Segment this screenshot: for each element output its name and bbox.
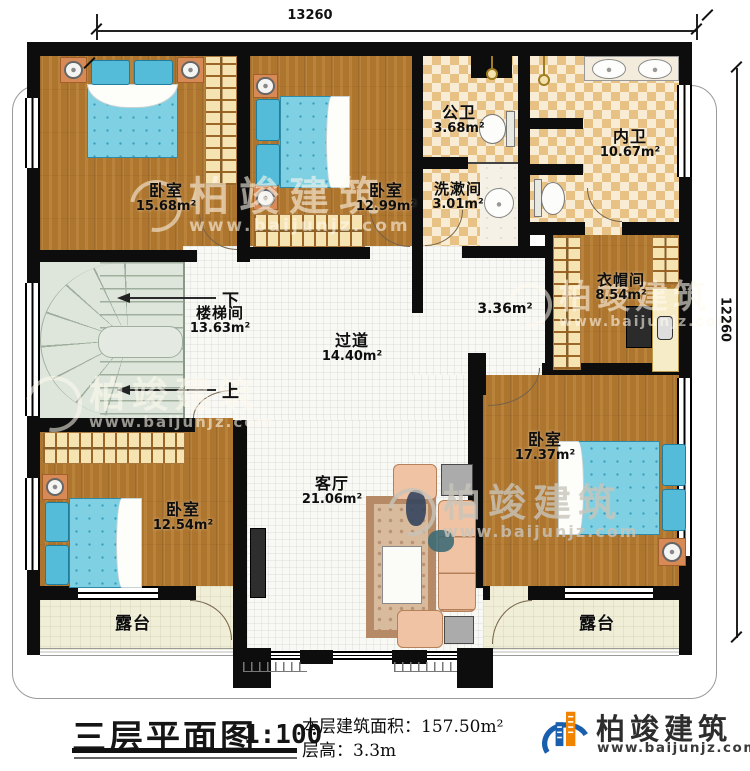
- wall-publicbath-washroom: [423, 157, 468, 169]
- wardrobe-bedroom2: [253, 214, 365, 247]
- pillow: [91, 60, 130, 85]
- wall-bedroom3-bottom-a: [27, 586, 78, 600]
- wall-bedroom4-bottom-c: [653, 586, 679, 600]
- wall-innerbath-bottom-a: [530, 222, 585, 235]
- wall-living-west: [233, 420, 247, 652]
- room-name: 楼梯间: [173, 305, 267, 322]
- toilet-inner-bath: [541, 182, 565, 215]
- pillow: [256, 99, 280, 141]
- label-hallway-nook: 3.36m²: [468, 302, 542, 318]
- wardrobe-cloakroom-left: [553, 237, 581, 370]
- line-publicbath-washroom: [468, 162, 518, 164]
- bed-fold-bedroom2: [326, 96, 350, 188]
- brand-logo: [540, 702, 592, 760]
- dim-tick: [701, 9, 713, 21]
- floor-height-label: 层高：: [302, 741, 353, 761]
- label-stairs-up: 上: [222, 377, 248, 402]
- room-area: 15.68m²: [116, 200, 216, 215]
- side-table-bottom: [444, 616, 474, 644]
- ceiling-light-public-bath: [486, 68, 498, 80]
- label-bedroom3: 卧室 12.54m²: [133, 501, 233, 533]
- nightstand-bedroom1-left: [60, 57, 87, 83]
- sofa-main: [438, 500, 476, 612]
- dimension-top-line: [97, 30, 697, 32]
- label-terrace-left: 露台: [93, 615, 173, 634]
- label-hallway: 过道 14.40m²: [307, 332, 397, 364]
- nightstand-bedroom1-right: [177, 57, 204, 83]
- floor-area-line: 本层建筑面积：157.50m²: [302, 712, 503, 737]
- dimension-right: 12260: [718, 295, 733, 345]
- wall-bedroom3-top: [27, 418, 195, 432]
- room-area: 21.06m²: [287, 493, 377, 508]
- nightstand-bedroom3: [42, 474, 68, 500]
- window-right-inner-bath: [677, 85, 692, 177]
- stair-landing: [98, 326, 183, 358]
- room-area: 3.68m²: [418, 122, 500, 137]
- wall-bedroom2-bottom: [250, 247, 370, 259]
- room-name: 洗漱间: [415, 181, 501, 198]
- wardrobe-bedroom1: [205, 56, 237, 186]
- label-public-bath: 公卫 3.68m²: [418, 104, 500, 136]
- pillow: [45, 545, 69, 585]
- room-name: 卧室: [116, 182, 216, 200]
- wall-bedroom3-bottom-b: [158, 586, 196, 600]
- wardrobe-bedroom3: [42, 432, 185, 464]
- room-area: 12.54m²: [133, 519, 233, 534]
- room-area: 13.63m²: [173, 322, 267, 337]
- label-bedroom1: 卧室 15.68m²: [116, 182, 216, 214]
- room-name: 过道: [307, 332, 397, 350]
- room-area: 10.67m²: [590, 146, 670, 161]
- ground-hatch-left: [243, 662, 307, 672]
- sink-inner-bath-right: [638, 59, 672, 79]
- pillow: [134, 60, 173, 85]
- floor-height-value: 3.3m: [353, 741, 396, 761]
- window-left-stairwell: [25, 283, 40, 416]
- label-inner-bath: 内卫 10.67m²: [590, 128, 670, 160]
- wall-innerbath-stub-2: [530, 164, 583, 175]
- room-area: 3.01m²: [415, 198, 501, 213]
- wall-washroom-bottom-a: [462, 246, 518, 258]
- wall-bedroom2-bath: [412, 42, 423, 313]
- label-cloakroom: 衣帽间 8.54m²: [576, 272, 666, 303]
- toilet-tank-public-bath: [506, 111, 515, 147]
- person-figure-standing: [406, 490, 426, 526]
- label-terrace-right: 露台: [557, 615, 637, 634]
- lamp-icon: [256, 77, 274, 95]
- pillar-bedroom4-door: [468, 353, 486, 395]
- wall-innerbath-stub-1: [530, 118, 583, 129]
- vanity-mirror-cloakroom: [626, 306, 652, 348]
- title-underline-thick: [72, 748, 297, 753]
- dimension-right-line: [736, 68, 738, 638]
- coffee-table: [382, 546, 422, 604]
- wall-top: [27, 42, 692, 56]
- lamp-icon: [181, 61, 201, 80]
- room-name: 卧室: [133, 501, 233, 519]
- parapet-terrace-left: [40, 648, 233, 656]
- floorplan-page: 柏竣建筑 www.baijunjz.com 柏竣建筑 www.baijunjz.…: [0, 0, 750, 771]
- floor-area-value: 157.50m²: [421, 717, 503, 737]
- room-name: 露台: [557, 615, 637, 634]
- label-living-room: 客厅 21.06m²: [287, 475, 377, 507]
- stair-up-arrow-line: [130, 389, 216, 391]
- lamp-icon: [662, 542, 682, 562]
- nightstand-bedroom4: [658, 538, 686, 566]
- stool-cloakroom: [657, 316, 673, 340]
- dimension-top: 13260: [260, 8, 360, 23]
- wall-innerbath-bottom-b: [622, 222, 679, 235]
- tv-living-room: [250, 528, 266, 598]
- pillar-living-southeast: [457, 648, 493, 688]
- room-name: 客厅: [287, 475, 377, 493]
- stair-up-arrow-head: [117, 385, 130, 395]
- room-name: 卧室: [495, 431, 595, 449]
- side-table-top: [441, 464, 473, 496]
- lamp-icon: [46, 478, 65, 497]
- stair-down-arrow-line: [130, 297, 216, 299]
- shower-head-inner-bath: [538, 74, 550, 86]
- floor-height-line: 层高：3.3m: [302, 736, 396, 761]
- room-name: 衣帽间: [576, 272, 666, 289]
- room-area: 3.36m²: [468, 302, 542, 318]
- room-name: 露台: [93, 615, 173, 634]
- wall-bedroom1-bottom-a: [27, 250, 197, 262]
- lamp-icon: [64, 61, 84, 80]
- label-stairwell: 楼梯间 13.63m²: [173, 305, 267, 336]
- nightstand-bedroom2-bottom: [253, 186, 278, 210]
- pillow: [256, 144, 280, 186]
- person-figure-sitting: [428, 530, 454, 552]
- wall-bedroom1-bottom-b: [237, 250, 250, 262]
- wall-bath-divider-vert: [518, 56, 530, 258]
- pillow: [662, 444, 686, 486]
- room-area: 17.37m²: [495, 449, 595, 464]
- wall-cloakroom-west: [545, 235, 553, 375]
- pillow: [45, 502, 69, 542]
- room-area: 14.40m²: [307, 350, 397, 365]
- light-stem: [543, 56, 545, 76]
- wall-bedroom4-bottom-b: [528, 586, 565, 600]
- wall-bedroom4-bottom-a: [483, 586, 490, 600]
- brand-url: www.baijunjz.com: [597, 740, 750, 756]
- room-area: 8.54m²: [576, 289, 666, 304]
- armchair-bottom: [397, 610, 443, 648]
- lamp-icon: [256, 189, 274, 207]
- window-bedroom3-terrace: [78, 586, 158, 600]
- stair-edge-line: [183, 262, 185, 418]
- parapet-terrace-right: [493, 648, 679, 656]
- window-living-south: [271, 651, 457, 660]
- title-underline-thin: [74, 757, 297, 759]
- nightstand-bedroom2-top: [253, 74, 278, 98]
- window-bedroom4-terrace: [565, 586, 653, 600]
- sink-inner-bath-left: [592, 59, 626, 79]
- window-left-bedroom1: [25, 98, 40, 168]
- room-name: 公卫: [418, 104, 500, 122]
- brand-logo-icon: [540, 702, 592, 760]
- stair-down-arrow-head: [117, 293, 130, 303]
- floor-area-label: 本层建筑面积：: [302, 717, 421, 737]
- ground-hatch-right: [394, 662, 457, 672]
- label-washroom: 洗漱间 3.01m²: [415, 181, 501, 212]
- wall-bedroom1-bedroom2: [237, 56, 250, 252]
- room-name: 内卫: [590, 128, 670, 146]
- window-left-bedroom3: [25, 478, 40, 570]
- pillow: [662, 489, 686, 531]
- label-bedroom4: 卧室 17.37m²: [495, 431, 595, 463]
